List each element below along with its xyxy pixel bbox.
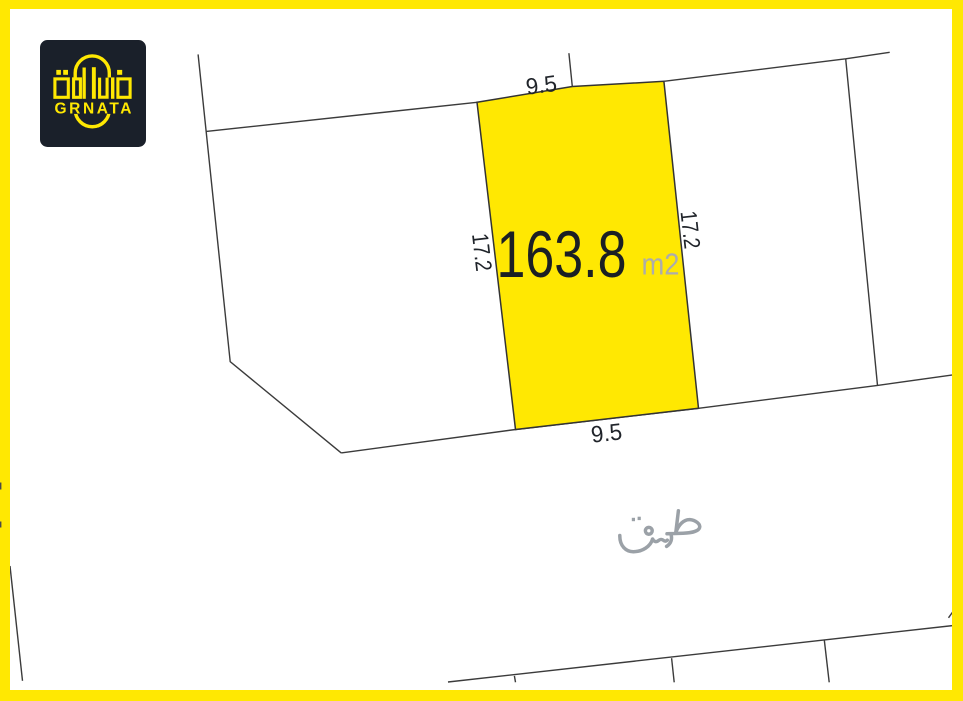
- svg-text:GRNATA: GRNATA: [55, 100, 132, 117]
